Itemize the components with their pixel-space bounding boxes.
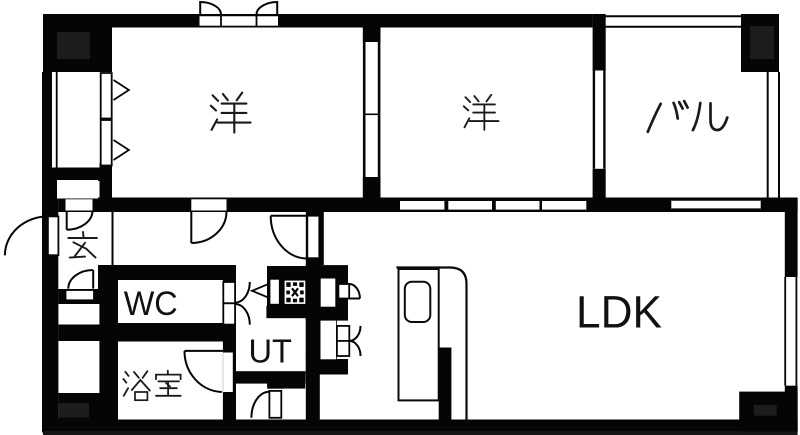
svg-text:UT: UT [249,332,293,369]
svg-text:LDK: LDK [576,287,662,338]
svg-text:WC: WC [124,285,178,323]
